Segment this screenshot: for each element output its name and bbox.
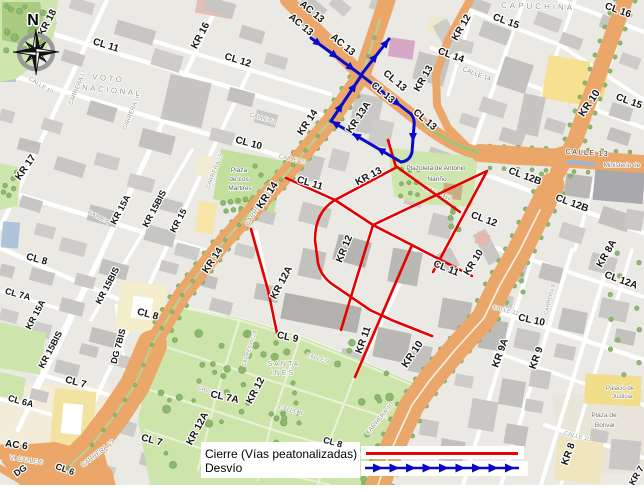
svg-text:SANTA: SANTA [268, 361, 301, 368]
svg-text:Desvío: Desvío [205, 461, 243, 475]
svg-text:Cierre (Vías peatonalizadas): Cierre (Vías peatonalizadas) [205, 447, 357, 461]
svg-text:Justicia: Justicia [612, 394, 633, 400]
svg-text:Mártires: Mártires [228, 185, 252, 192]
svg-text:INÉS: INÉS [271, 368, 295, 377]
svg-text:de Los: de Los [229, 176, 249, 183]
svg-text:Plaza de: Plaza de [591, 412, 617, 419]
svg-text:Ministerio de: Ministerio de [604, 162, 641, 169]
svg-text:Nariño: Nariño [427, 176, 447, 183]
svg-text:Bolívar: Bolívar [595, 422, 616, 429]
svg-text:N: N [27, 12, 39, 29]
svg-text:Plaza: Plaza [231, 167, 248, 174]
svg-text:Plazoleta de Antonio: Plazoleta de Antonio [406, 165, 466, 172]
svg-text:Palacio de: Palacio de [606, 386, 635, 392]
